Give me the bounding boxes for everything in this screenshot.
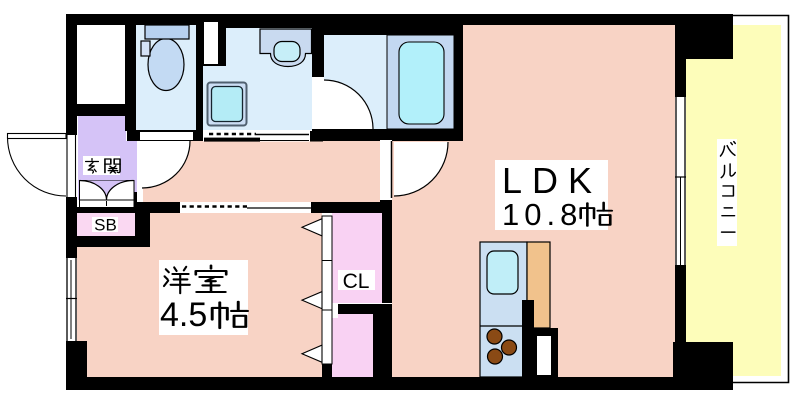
svg-text:4.5: 4.5 [160, 296, 207, 334]
svg-text:10.8: 10.8 [502, 197, 582, 232]
svg-text:CL: CL [343, 270, 370, 293]
svg-text:SB: SB [94, 216, 117, 235]
svg-text:LDK: LDK [502, 160, 602, 201]
